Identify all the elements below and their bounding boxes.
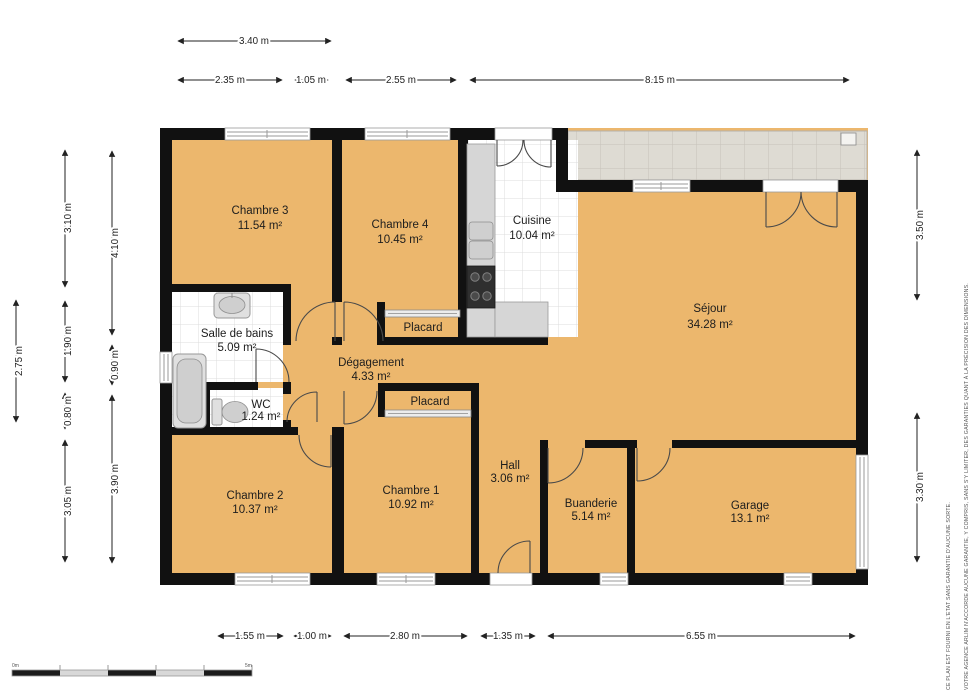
kitchen-counter-l: [495, 302, 548, 337]
room-label-chambre-3: Chambre 3: [232, 205, 289, 217]
dim-bottom-280: 2.80 m: [390, 631, 420, 642]
kitchen-sink-1: [469, 222, 493, 240]
room-label-placard-haut: Placard: [404, 322, 443, 334]
kitchen-sink-2: [469, 241, 493, 259]
window-buanderie-bottom: [600, 573, 628, 585]
dim-bottom-135: 1.35 m: [493, 631, 523, 642]
room-area-chambre-1: 10.92 m²: [388, 499, 434, 511]
placard-bas-rail: [385, 410, 471, 417]
terrace-post: [841, 133, 856, 145]
french-door-threshold: [763, 180, 838, 192]
dim-left-275: 2.75 m: [14, 346, 25, 376]
room-label-degagement: Dégagement: [338, 357, 405, 369]
room-area-chambre-2: 10.37 m²: [232, 504, 278, 516]
floor-plan-canvas: Chambre 3 11.54 m² Chambre 4 10.45 m² Cu…: [0, 0, 980, 693]
window-garage-bottom: [784, 573, 812, 585]
room-label-cuisine: Cuisine: [513, 215, 551, 227]
disclaimer-line-1: CE PLAN EST FOURNI EN L'ETAT SANS GARANT…: [946, 502, 952, 690]
dim-left-305: 3.05 m: [63, 486, 74, 516]
room-area-degagement: 4.33 m²: [352, 371, 391, 383]
window-chambre4-top: [365, 128, 450, 140]
bathtub-icon: [173, 354, 206, 428]
room-label-wc: WC: [251, 399, 270, 411]
room-area-chambre-4: 10.45 m²: [377, 234, 423, 246]
dim-left-410: 4.10 m: [110, 228, 121, 258]
room-label-buanderie: Buanderie: [565, 498, 617, 510]
room-area-buanderie: 5.14 m²: [572, 511, 611, 523]
window-sejour-top: [633, 180, 690, 192]
terrace: [568, 131, 867, 180]
front-door-threshold: [490, 573, 532, 585]
dim-top-255: 2.55 m: [386, 75, 416, 86]
window-chambre1-bottom: [377, 573, 435, 585]
dim-bottom-155: 1.55 m: [235, 631, 265, 642]
scale-bar-start-label: 0m: [12, 663, 19, 669]
scale-bar: 0m 5m: [12, 663, 252, 676]
room-area-hall: 3.06 m²: [491, 473, 530, 485]
room-area-cuisine: 10.04 m²: [509, 230, 555, 242]
room-label-chambre-1: Chambre 1: [383, 485, 440, 497]
window-chambre3-top: [225, 128, 310, 140]
floor-plan-page: Chambre 3 11.54 m² Chambre 4 10.45 m² Cu…: [0, 0, 980, 693]
dim-top-815: 8.15 m: [645, 75, 675, 86]
disclaimer-line-2: VOTRE AGENCE ARLIM N'ACCORDE AUCUNE GARA…: [963, 283, 970, 690]
room-area-salle-de-bains: 5.09 m²: [218, 342, 257, 354]
dim-left-080: 0.80 m: [63, 396, 74, 426]
room-label-chambre-2: Chambre 2: [227, 490, 284, 502]
room-label-garage: Garage: [731, 500, 769, 512]
room-label-sejour: Séjour: [693, 303, 726, 315]
window-salle-de-bains-left: [160, 352, 172, 383]
room-label-salle-de-bains: Salle de bains: [201, 328, 273, 340]
window-chambre2-bottom: [235, 573, 310, 585]
dim-top-340: 3.40 m: [239, 36, 269, 47]
room-area-chambre-3: 11.54 m²: [238, 220, 283, 232]
dim-bottom-100: 1.00 m: [297, 631, 327, 642]
bathroom-sink-icon: [214, 293, 250, 318]
dim-left-390: 3.90 m: [110, 464, 121, 494]
scale-bar-end-label: 5m: [245, 663, 252, 669]
dim-right-350: 3.50 m: [915, 210, 926, 240]
room-label-hall: Hall: [500, 460, 520, 472]
dim-left-310: 3.10 m: [63, 203, 74, 233]
dim-top-105: 1.05 m: [296, 75, 326, 86]
kitchen-entry-threshold: [495, 128, 552, 140]
stove-icon: [467, 266, 495, 308]
placard-haut-rail: [385, 310, 460, 317]
window-garage-right: [856, 455, 868, 569]
dim-bottom-655: 6.55 m: [686, 631, 716, 642]
room-label-placard-bas: Placard: [411, 396, 450, 408]
room-label-chambre-4: Chambre 4: [372, 219, 429, 231]
dim-right-330: 3.30 m: [915, 472, 926, 502]
dim-left-090: 0.90 m: [110, 350, 121, 380]
dim-left-190: 1.90 m: [63, 326, 74, 356]
room-area-sejour: 34.28 m²: [687, 319, 733, 331]
room-area-garage: 13.1 m²: [731, 513, 770, 525]
disclaimer: CE PLAN EST FOURNI EN L'ETAT SANS GARANT…: [946, 283, 970, 690]
dim-top-235: 2.35 m: [215, 75, 245, 86]
room-area-wc: 1.24 m²: [242, 411, 281, 423]
